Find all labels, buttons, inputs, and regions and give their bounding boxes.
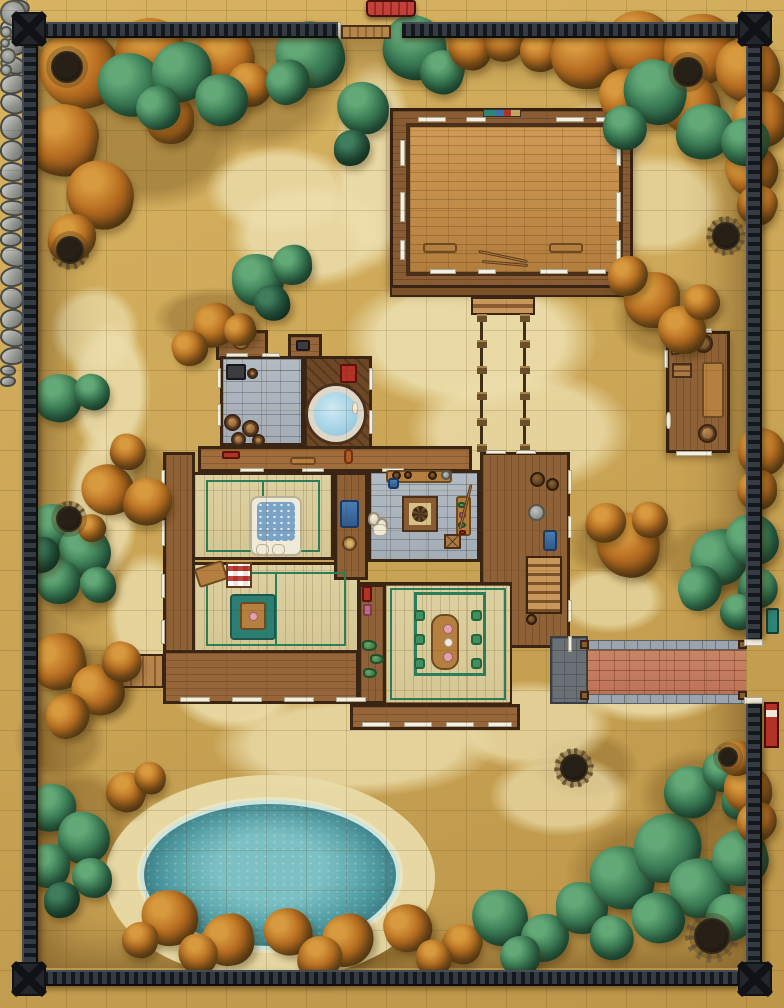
east-stairs (526, 556, 562, 614)
wall-north-east (402, 22, 740, 38)
corner-tower-sw (12, 962, 46, 996)
sitting-room-tatami-trim (206, 572, 346, 646)
stepping-stone (0, 38, 10, 48)
north-gate-door (341, 25, 391, 39)
corner-tower-nw (12, 12, 46, 46)
walkway-fence-east (520, 314, 530, 452)
wall-south (44, 970, 740, 986)
wall-west (22, 44, 38, 970)
dining-alcove (358, 584, 386, 704)
dojo-hall-floor (406, 123, 623, 276)
dojo-steps (471, 297, 535, 315)
wall-north-west (44, 22, 338, 38)
dining-table (431, 614, 459, 670)
weapon-rack (483, 109, 521, 117)
north-gate-red-roof (366, 0, 416, 17)
irori-hearth (402, 496, 438, 532)
dining-engawa (350, 704, 520, 730)
bath-prep-room (220, 356, 304, 446)
corner-tower-se (738, 962, 772, 996)
dojo-building (390, 108, 633, 288)
corner-tower-ne (738, 12, 772, 46)
wall-east-south (746, 704, 762, 970)
battle-map (0, 0, 784, 1008)
stepping-stone (0, 26, 12, 38)
north-hallway (198, 446, 472, 472)
south-veranda (163, 650, 359, 704)
path-post (580, 691, 589, 700)
east-corridor (334, 472, 368, 580)
wall-east-north (746, 44, 762, 639)
east-gate-banner (764, 702, 779, 748)
bath-tub (308, 386, 364, 442)
stepping-stone (0, 48, 16, 64)
dojo-lower-ledge (390, 286, 633, 297)
path-post (738, 640, 747, 649)
storage-shed (666, 331, 730, 453)
path-north-curb (584, 640, 746, 650)
path-post (580, 640, 589, 649)
stepping-stone (0, 64, 12, 76)
walkway-fence-west (477, 314, 487, 452)
futon-bed (250, 496, 302, 556)
west-steps (118, 654, 164, 688)
pink-stone-path (584, 650, 746, 694)
path-post (738, 691, 747, 700)
path-south-curb (584, 694, 746, 704)
